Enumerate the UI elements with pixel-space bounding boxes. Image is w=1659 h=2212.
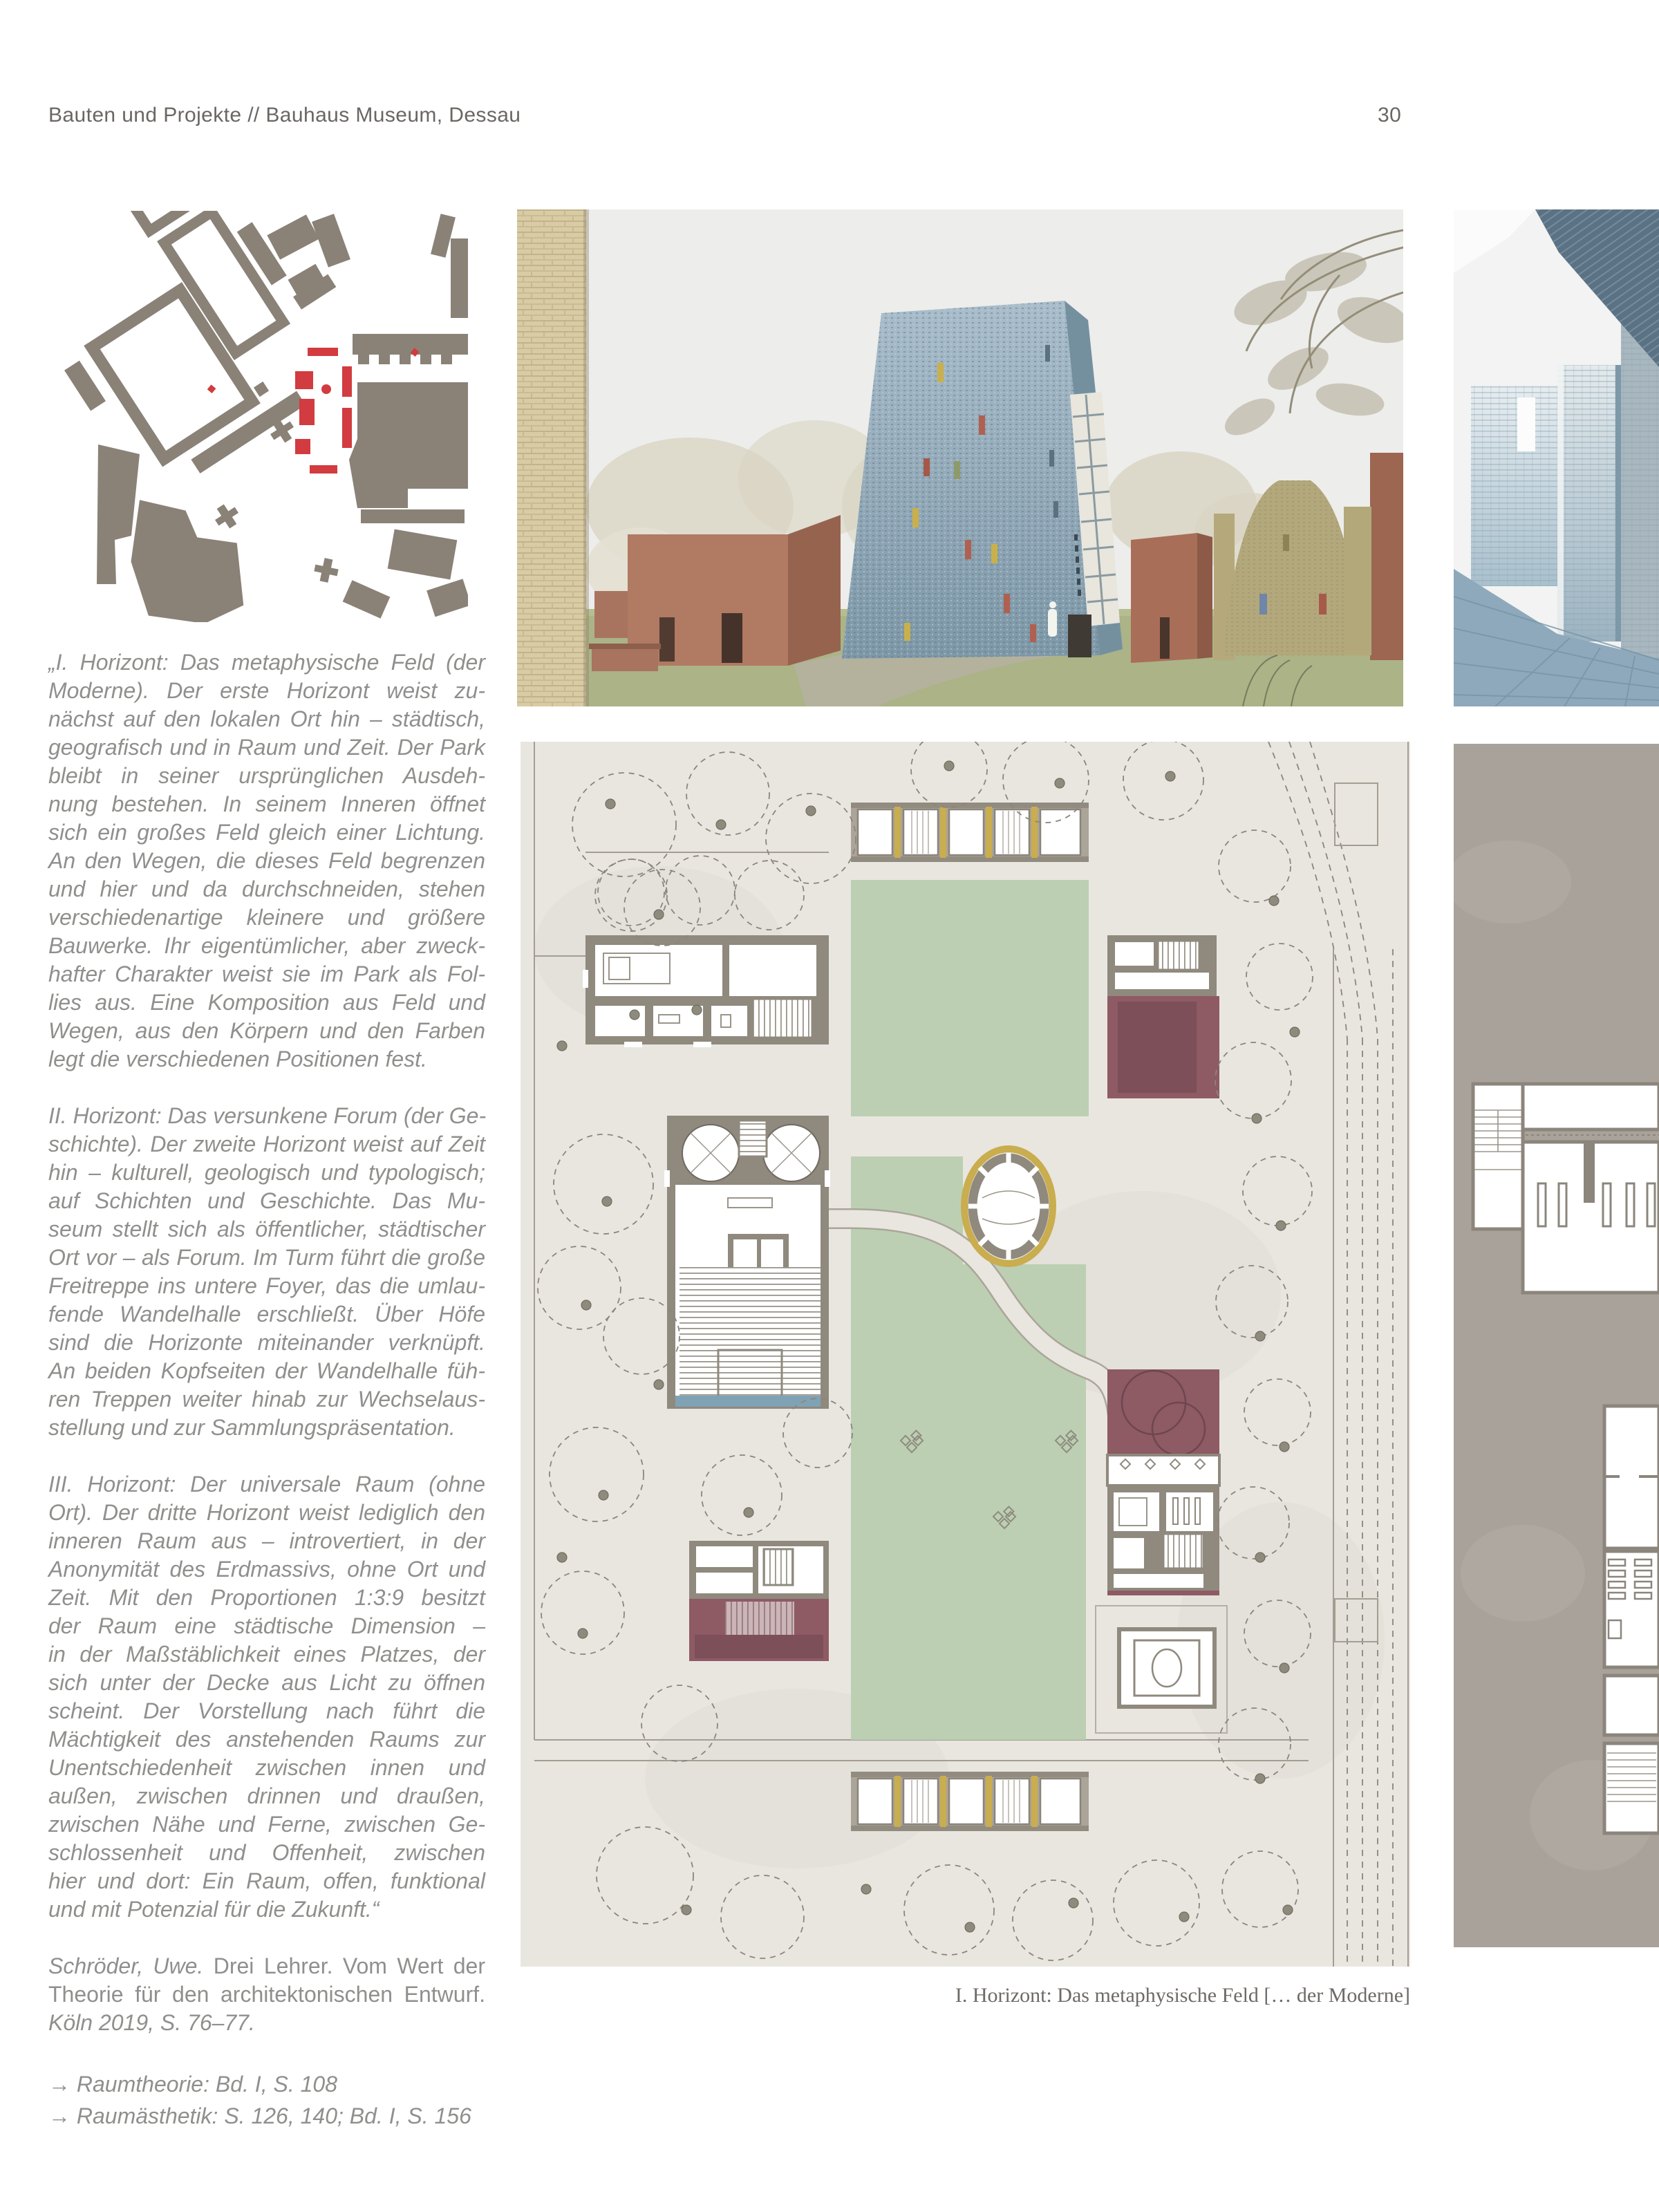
text-line: scheint. Der Vorstellung nach führt die — [48, 1697, 485, 1725]
citation: Schröder, Uwe. Drei Lehrer. Vom Wert der… — [48, 1952, 485, 2037]
text-line: der Raum eine städtische Dimension – — [48, 1612, 485, 1640]
figure-site-plan — [521, 742, 1410, 1967]
text-line: und mit Potenzial für die Zukunft.“ — [48, 1895, 485, 1924]
text-line: hier und dort: Ein Raum, offen, funktion… — [48, 1867, 485, 1895]
text-line: Moderne). Der erste Horizont weist zu- — [48, 677, 485, 705]
text-segment: Köln 2019, S. 76–77. — [48, 2010, 255, 2035]
text-line: sich unter der Decke aus Licht zu öffnen — [48, 1669, 485, 1697]
text-line: zwischen Nähe und Ferne, zwischen Ge- — [48, 1810, 485, 1839]
brick-building-right — [1131, 533, 1212, 663]
text-line: Unentschiedenheit zwischen innen und — [48, 1754, 485, 1782]
text-line: geografisch und in Raum und Zeit. Der Pa… — [48, 733, 485, 762]
text-line: verschiedenartige kleinere und größere — [48, 903, 485, 932]
figure-exterior-rendering — [517, 209, 1403, 706]
pergola-north — [851, 803, 1089, 862]
text-line: Anonymität des Erdmassivs, ohne Ort und — [48, 1555, 485, 1584]
page-number: 30 — [1378, 104, 1401, 127]
text-line: bleibt in seiner ursprünglichen Ausdeh- — [48, 762, 485, 790]
reference-list: → Raumtheorie: Bd. I, S. 108→ Raumästhet… — [48, 2068, 471, 2132]
quote-paragraph-3: III. Horizont: Der universale Raum (ohne… — [48, 1470, 485, 1924]
text-line: Bauwerke. Ihr eigentümlicher, aber zweck… — [48, 932, 485, 960]
building-workshops — [583, 935, 829, 1047]
building-north-east — [1107, 935, 1219, 1098]
text-segment: Drei Lehrer. Vom Wert der — [203, 1953, 485, 1978]
text-line: außen, zwischen drinnen und draußen, — [48, 1782, 485, 1810]
text-line: Theorie für den architektonischen Entwur… — [48, 1980, 485, 2009]
text-line: Köln 2019, S. 76–77. — [48, 2009, 485, 2037]
text-line: Zeit. Mit den Proportionen 1:3:9 besitzt — [48, 1584, 485, 1612]
figure-passage-rendering — [1454, 209, 1659, 706]
text-line: sind die Horizonte miteinander verknüpft… — [48, 1329, 485, 1357]
text-line: Schröder, Uwe. Drei Lehrer. Vom Wert der — [48, 1952, 485, 1980]
text-line: legt die verschiedenen Positionen fest. — [48, 1045, 485, 1074]
text-line: III. Horizont: Der universale Raum (ohne — [48, 1470, 485, 1499]
building-south-west — [689, 1541, 829, 1661]
tower-entrance — [1068, 615, 1091, 657]
text-line: inneren Raum aus – introvertiert, in der — [48, 1527, 485, 1555]
figure-site-map — [48, 211, 468, 622]
text-line: lies aus. Eine Komposition aus Feld und — [48, 988, 485, 1017]
figure-floorplan-strip — [1454, 744, 1659, 1947]
text-line: „I. Horizont: Das metaphysische Feld (de… — [48, 648, 485, 677]
text-line: sich ein großes Feld gleich einer Lichtu… — [48, 818, 485, 847]
text-line: An den Wegen, die dieses Feld begrenzen — [48, 847, 485, 875]
quote-paragraph-2: II. Horizont: Das versunkene Forum (der … — [48, 1102, 485, 1442]
light-slit — [1517, 397, 1535, 451]
green-field-north — [851, 880, 1089, 1116]
text-line: An beiden Kopfseiten der Wandelhalle füh… — [48, 1357, 485, 1385]
text-line: seum stellt sich als öffentlicher, städt… — [48, 1215, 485, 1244]
text-line: auf Schichten und Geschichte. Das Mu- — [48, 1187, 485, 1215]
text-segment: Theorie für den architektonischen Entwur… — [48, 1982, 485, 2007]
reference-item: → Raumtheorie: Bd. I, S. 108 — [48, 2068, 471, 2100]
text-line: ren Treppen weiter hinab zur Wechselaus- — [48, 1385, 485, 1414]
closeup-brick-wall — [517, 209, 586, 706]
text-segment: Schröder, Uwe. — [48, 1953, 203, 1978]
text-line: fende Wandelhalle erschließt. Über Höfe — [48, 1300, 485, 1329]
text-line: in der Maßstäblichkeit eines Platzes, de… — [48, 1640, 485, 1669]
reference-item: → Raumästhetik: S. 126, 140; Bd. I, S. 1… — [48, 2100, 471, 2132]
text-line: schlossenheit und Offenheit, zwischen — [48, 1839, 485, 1867]
quote-column: „I. Horizont: Das metaphysische Feld (de… — [48, 648, 485, 2065]
building-forum — [664, 1116, 830, 1409]
book-page: Bauten und Projekte // Bauhaus Museum, D… — [0, 0, 1659, 2212]
text-line: Ort vor – als Forum. Im Turm führt die g… — [48, 1244, 485, 1272]
text-line: hafter Charakter weist sie im Park als F… — [48, 960, 485, 988]
pergola-south — [851, 1772, 1089, 1831]
caption-site-plan: I. Horizont: Das metaphysische Feld [… d… — [926, 1984, 1410, 2007]
text-line: stellung und zur Sammlungspräsentation. — [48, 1414, 485, 1442]
text-line: II. Horizont: Das versunkene Forum (der … — [48, 1102, 485, 1130]
blue-tower — [842, 301, 1123, 659]
floorplan-fragment-lower — [1604, 1406, 1659, 1833]
text-line: und hier und da durchschneiden, stehen — [48, 875, 485, 903]
text-line: Ort). Der dritte Horizont weist lediglic… — [48, 1499, 485, 1527]
text-line: Wegen, aus den Körpern und den Farben — [48, 1017, 485, 1045]
text-line: schichte). Der zweite Horizont weist auf… — [48, 1130, 485, 1159]
quote-paragraph-1: „I. Horizont: Das metaphysische Feld (de… — [48, 648, 485, 1074]
text-line: hin – kulturell, geologisch und typologi… — [48, 1159, 485, 1187]
building-south-east — [1107, 1369, 1219, 1595]
text-line: nächst auf den lokalen Ort hin – städtis… — [48, 705, 485, 733]
text-line: Freitreppe ins untere Foyer, das die uml… — [48, 1272, 485, 1300]
text-line: nung bestehen. In seinem Inneren öffnet — [48, 790, 485, 818]
tower-footprint — [964, 1149, 1053, 1264]
running-header: Bauten und Projekte // Bauhaus Museum, D… — [48, 104, 521, 127]
text-line: Mächtigkeit des anstehenden Raums zur — [48, 1725, 485, 1754]
